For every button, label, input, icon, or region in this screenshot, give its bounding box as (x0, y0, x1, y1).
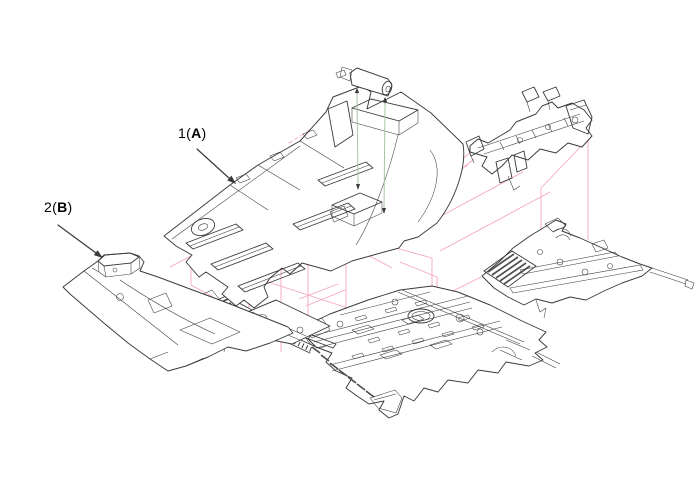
callout-2b-letter: B (57, 199, 67, 215)
callout-2b-suffix: ) (67, 199, 72, 215)
line-art-path (650, 268, 694, 289)
line-art-path (482, 220, 652, 305)
line-art-path (508, 176, 520, 190)
arrowhead-2b (94, 250, 103, 258)
line-art-path (164, 86, 464, 308)
callout-1a-prefix: 1( (178, 125, 191, 141)
line-art-path (536, 300, 546, 318)
callout-1a-letter: A (191, 125, 201, 141)
line-art-path (296, 286, 547, 418)
diagram-canvas: 1(A) 2(B) (0, 0, 700, 491)
line-art-path (470, 102, 592, 174)
exploded-diagram (0, 0, 700, 491)
floor-pan-part (296, 286, 560, 418)
callout-1a-suffix: ) (201, 125, 206, 141)
callout-label-2b: 2(B) (44, 200, 72, 214)
callout-arrow-1a (197, 149, 236, 184)
callout-arrow-2b (58, 225, 103, 258)
line-art-path (522, 87, 560, 102)
line-art-path (299, 284, 345, 306)
callout-2b-prefix: 2( (44, 199, 57, 215)
floor-carpet-part (164, 86, 464, 308)
console-bracket-part (466, 87, 592, 190)
line-art-path (197, 149, 230, 179)
callout-label-1a: 1(A) (178, 126, 206, 140)
line-art-path (58, 225, 96, 253)
